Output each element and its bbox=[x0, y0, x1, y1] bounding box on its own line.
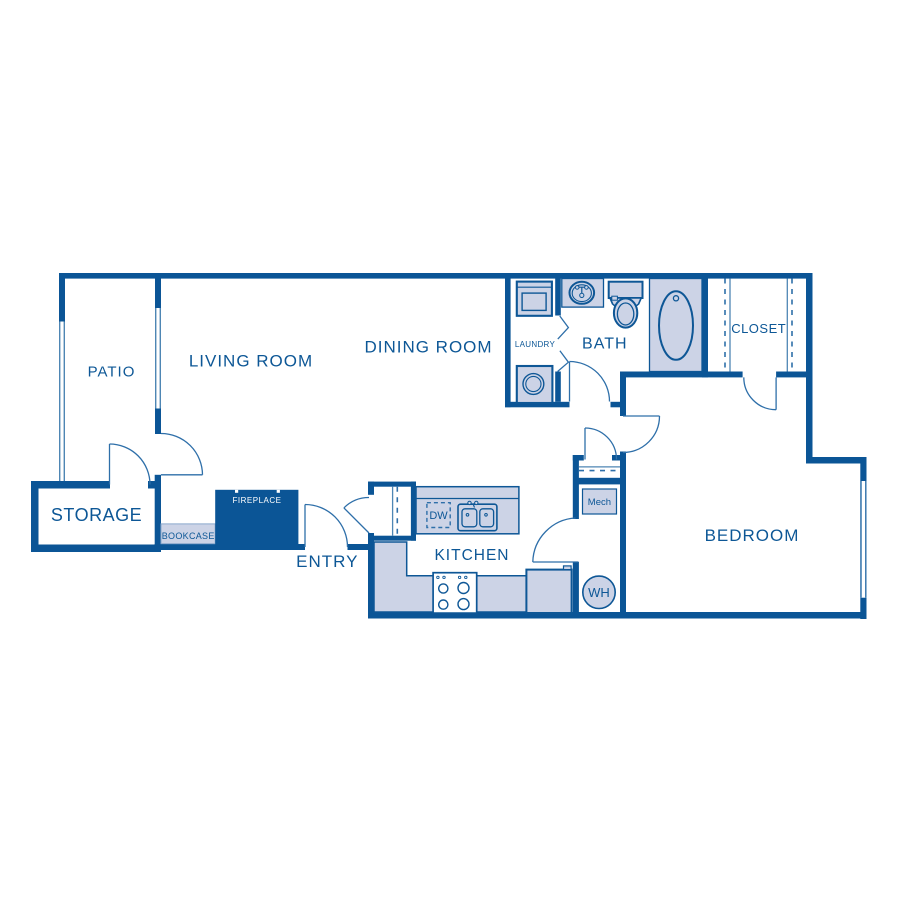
svg-text:BOOKCASE: BOOKCASE bbox=[162, 531, 215, 541]
svg-text:BEDROOM: BEDROOM bbox=[705, 526, 800, 545]
svg-text:PATIO: PATIO bbox=[88, 364, 136, 381]
svg-text:CLOSET: CLOSET bbox=[731, 321, 786, 336]
svg-text:BATH: BATH bbox=[582, 335, 627, 352]
svg-text:FIREPLACE: FIREPLACE bbox=[233, 496, 282, 505]
svg-text:Mech: Mech bbox=[588, 497, 611, 508]
svg-text:LIVING ROOM: LIVING ROOM bbox=[189, 351, 313, 370]
svg-text:LAUNDRY: LAUNDRY bbox=[515, 340, 556, 349]
svg-text:KITCHEN: KITCHEN bbox=[434, 547, 509, 564]
svg-text:STORAGE: STORAGE bbox=[51, 505, 142, 525]
svg-text:WH: WH bbox=[588, 585, 610, 600]
svg-text:DINING ROOM: DINING ROOM bbox=[364, 338, 492, 357]
svg-text:DW: DW bbox=[429, 510, 448, 522]
svg-text:ENTRY: ENTRY bbox=[296, 552, 358, 571]
